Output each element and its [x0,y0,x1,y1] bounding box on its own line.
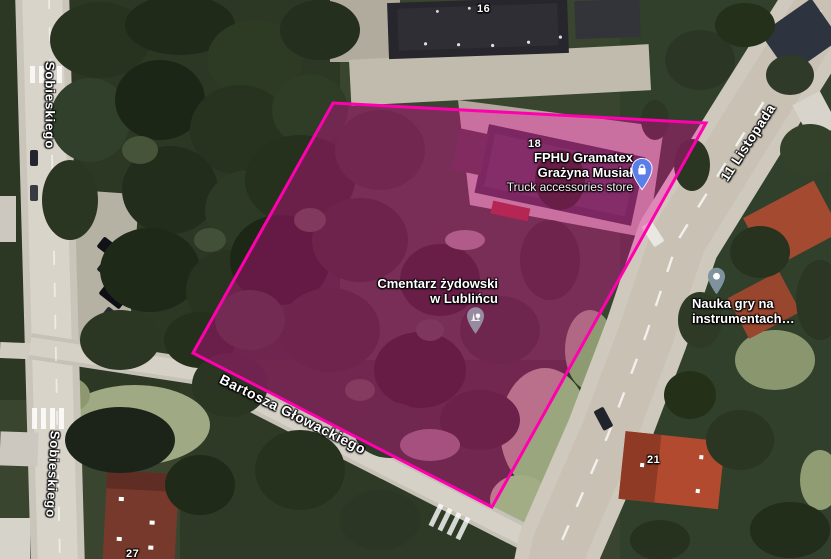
building-16 [387,0,569,59]
building-west-mid [0,196,16,242]
map-canvas[interactable]: Sobieskiego Sobieskiego 11 Listopada Bar… [0,0,831,559]
satellite-imagery [0,0,831,559]
building-top-right-annex [574,0,640,39]
building-west-corner [0,518,30,559]
building-west-low [0,431,39,466]
